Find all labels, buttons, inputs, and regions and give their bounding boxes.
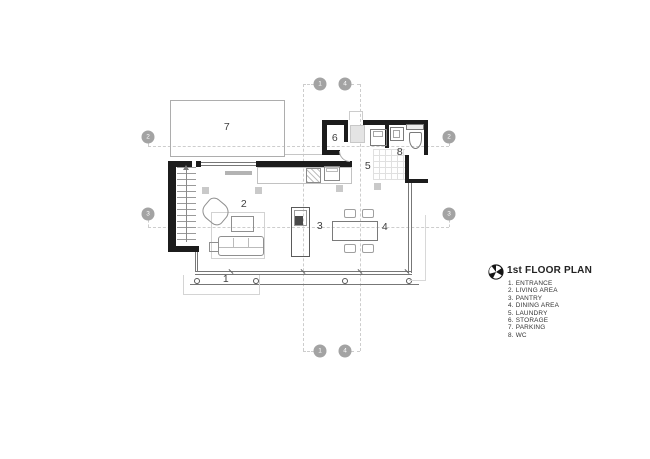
floor-plan-drawing: 14223314 12345678 1st FLOOR PLAN 1. ENTR…	[0, 0, 650, 459]
room-label-2: 2	[241, 198, 247, 210]
room-label-3: 3	[317, 220, 323, 232]
legend-item-4: 4. DINING AREA	[508, 302, 559, 309]
legend-list: 1. ENTRANCE2. LIVING AREA3. PANTRY4. DIN…	[508, 280, 559, 339]
legend-item-6: 6. STORAGE	[508, 317, 559, 324]
room-label-5: 5	[365, 160, 371, 172]
pinwheel-logo-icon	[488, 264, 504, 280]
room-label-6: 6	[332, 132, 338, 144]
legend-item-3: 3. PANTRY	[508, 295, 559, 302]
legend-item-1: 1. ENTRANCE	[508, 280, 559, 287]
room-labels-layer: 12345678	[0, 0, 650, 459]
legend-title: 1st FLOOR PLAN	[507, 265, 592, 276]
room-label-8: 8	[397, 146, 403, 158]
room-label-1: 1	[223, 273, 229, 285]
room-label-7: 7	[224, 121, 230, 133]
room-label-4: 4	[382, 221, 388, 233]
legend-item-5: 5. LAUNDRY	[508, 310, 559, 317]
legend-item-7: 7. PARKING	[508, 324, 559, 331]
legend-item-2: 2. LIVING AREA	[508, 287, 559, 294]
legend-item-8: 8. WC	[508, 332, 559, 339]
